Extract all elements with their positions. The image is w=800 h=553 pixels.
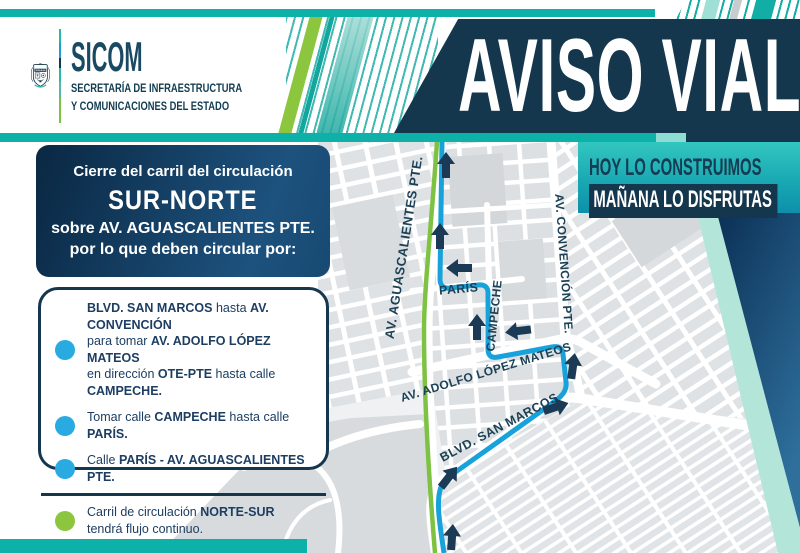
detour-step: BLVD. SAN MARCOS hasta AV. CONVENCIÓNpar… xyxy=(55,300,318,399)
step-bullet-icon xyxy=(55,416,75,436)
title-banner: AVISO VIAL xyxy=(394,19,800,133)
step-text: Carril de circulación NORTE-SURtendrá fl… xyxy=(87,504,275,537)
step-text: BLVD. SAN MARCOS hasta AV. CONVENCIÓNpar… xyxy=(87,300,318,399)
detour-step: Calle PARÍS - AV. AGUASCALIENTES PTE. xyxy=(55,452,318,485)
advisory-intro: Cierre del carril del circulación xyxy=(73,163,292,180)
header-divider-strip-mint xyxy=(656,133,686,142)
slogan-line2: MAÑANA LO DISFRUTAS xyxy=(589,184,777,218)
step-bullet-icon xyxy=(55,340,75,360)
bottom-accent-bar xyxy=(0,539,307,553)
logo-divider xyxy=(59,29,61,123)
step-bullet-icon xyxy=(55,459,75,479)
step-text: Calle PARÍS - AV. AGUASCALIENTES PTE. xyxy=(87,452,318,485)
detour-step: Carril de circulación NORTE-SURtendrá fl… xyxy=(55,504,318,537)
step-text: Tomar calle CAMPECHE hasta calle PARÍS. xyxy=(87,409,318,442)
brand-acronym: SICOM xyxy=(71,37,143,77)
detour-list-box: BLVD. SAN MARCOS hasta AV. CONVENCIÓNpar… xyxy=(38,287,329,470)
brand-secretariat-line1: SECRETARÍA DE INFRAESTRUCTURA xyxy=(71,82,242,96)
advisory-instruction: por lo que deben circular por: xyxy=(70,241,297,259)
brand-secretariat-line2: Y COMUNICACIONES DEL ESTADO xyxy=(71,100,229,114)
aviso-vial-poster: { "header": { "title": "AVISO VIAL", "lo… xyxy=(0,0,800,553)
advisory-panel: Cierre del carril del circulación SUR-NO… xyxy=(36,145,330,277)
header-divider-strip-navy xyxy=(686,133,800,142)
page-title: AVISO VIAL xyxy=(458,20,800,132)
sicom-logo: TERRA.BONA SICOM SECRETARÍA DE INFRAESTR… xyxy=(30,17,290,135)
detour-step: Tomar calle CAMPECHE hasta calle PARÍS. xyxy=(55,409,318,442)
slogan-line1: HOY LO CONSTRUIMOS xyxy=(589,154,762,182)
top-teal-bar xyxy=(0,9,655,17)
detour-steps-list: BLVD. SAN MARCOS hasta AV. CONVENCIÓNpar… xyxy=(41,290,326,493)
state-coat-of-arms-icon: TERRA.BONA xyxy=(30,24,51,128)
advisory-direction: SUR-NORTE xyxy=(108,185,257,216)
slogan-box: HOY LO CONSTRUIMOS MAÑANA LO DISFRUTAS xyxy=(578,142,800,213)
step-bullet-icon xyxy=(55,511,75,531)
advisory-street: sobre AV. AGUASCALIENTES PTE. xyxy=(51,220,315,238)
